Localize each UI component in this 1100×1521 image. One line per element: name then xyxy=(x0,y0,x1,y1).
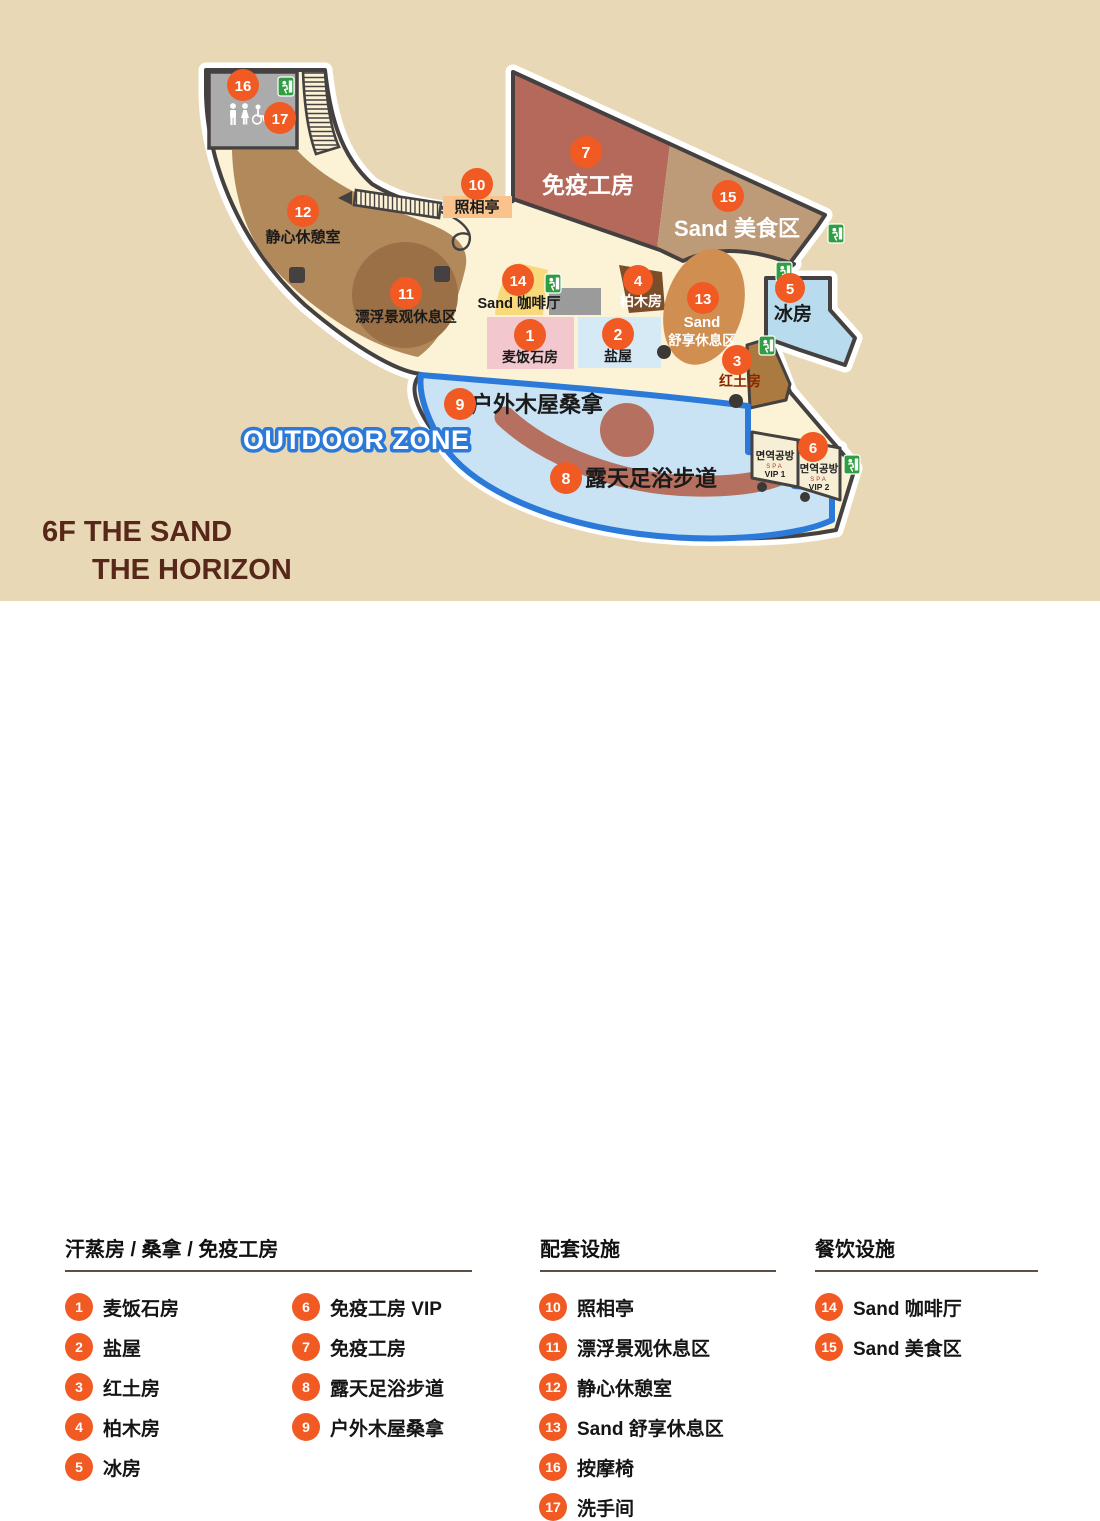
vip2-tag: VIP 2 xyxy=(809,482,830,492)
svg-text:2: 2 xyxy=(614,327,623,344)
page-title-line1: 6F THE SAND xyxy=(42,516,232,548)
map-marker-11: 11 xyxy=(390,277,422,309)
map-marker-12: 12 xyxy=(287,195,319,227)
legend-item-10: 10照相亭 xyxy=(539,1293,724,1321)
pillar-dot xyxy=(757,482,767,492)
legend-num-badge: 7 xyxy=(292,1333,320,1361)
svg-text:5: 5 xyxy=(786,281,794,298)
exit-icon xyxy=(828,224,844,243)
legend-num-badge: 4 xyxy=(65,1413,93,1441)
legend-col-dining: 14Sand 咖啡厅 15Sand 美食区 xyxy=(815,1293,962,1361)
vip2-name: 면역공방 xyxy=(800,462,839,475)
legend-item-6: 6免疫工房 VIP xyxy=(292,1293,444,1321)
page-title-line2: THE HORIZON xyxy=(92,554,292,586)
legend-divider xyxy=(540,1270,776,1272)
legend-item-8: 8露天足浴步道 xyxy=(292,1373,444,1401)
map-marker-4: 4 xyxy=(623,265,653,295)
legend-item-7: 7免疫工房 xyxy=(292,1333,444,1361)
svg-text:6: 6 xyxy=(809,440,817,457)
map-marker-15: 15 xyxy=(712,180,744,212)
legend-item-12: 12静心休憩室 xyxy=(539,1373,724,1401)
legend-num-badge: 8 xyxy=(292,1373,320,1401)
floor-map-section: 면역공방 SPA VIP 1 면역공방 SPA VIP 2 照相亭 免疫工房 S… xyxy=(0,0,1100,601)
legend-item-9: 9户外木屋桑拿 xyxy=(292,1413,444,1441)
massage-chair-square xyxy=(289,267,305,283)
legend-num-badge: 11 xyxy=(539,1333,567,1361)
label-sand-cafe: Sand 咖啡厅 xyxy=(478,294,561,312)
legend-section-title-amenities: 配套设施 xyxy=(540,1233,620,1262)
legend-item-11: 11漂浮景观休息区 xyxy=(539,1333,724,1361)
legend-item-1: 1麦饭石房 xyxy=(65,1293,179,1321)
pillar-dot xyxy=(729,394,743,408)
label-salt-room: 盐屋 xyxy=(604,348,632,364)
pillar-dot xyxy=(800,492,810,502)
legend-item-17: 17洗手间 xyxy=(539,1493,724,1521)
label-sand-food-zone: Sand 美食区 xyxy=(674,216,800,241)
legend-item-14: 14Sand 咖啡厅 xyxy=(815,1293,962,1321)
map-marker-8: 8 xyxy=(550,462,582,494)
legend-divider xyxy=(65,1270,472,1272)
legend-section-title-sauna: 汗蒸房 / 桑拿 / 免疫工房 xyxy=(65,1233,278,1262)
label-cypress-room: 柏木房 xyxy=(620,293,662,309)
legend-item-16: 16按摩椅 xyxy=(539,1453,724,1481)
label-outdoor-cabin-sauna: 户外木屋桑拿 xyxy=(471,392,604,417)
svg-text:1: 1 xyxy=(526,328,535,345)
floor-map: 면역공방 SPA VIP 1 면역공방 SPA VIP 2 照相亭 免疫工房 S… xyxy=(0,0,1100,601)
legend-col-sauna-b: 6免疫工房 VIP 7免疫工房 8露天足浴步道 9户外木屋桑拿 xyxy=(292,1293,444,1441)
legend-item-3: 3红土房 xyxy=(65,1373,179,1401)
legend-divider xyxy=(815,1270,1038,1272)
map-marker-13: 13 xyxy=(687,282,719,314)
outdoor-zone-label: OUTDOOR ZONE xyxy=(243,425,470,455)
outdoor-sauna-circle xyxy=(600,403,654,457)
map-marker-6: 6 xyxy=(798,432,828,462)
vip1-tag: VIP 1 xyxy=(765,469,786,479)
svg-text:16: 16 xyxy=(235,78,252,95)
legend-num-badge: 10 xyxy=(539,1293,567,1321)
svg-text:14: 14 xyxy=(510,273,527,290)
legend-num-badge: 12 xyxy=(539,1373,567,1401)
map-marker-7: 7 xyxy=(570,136,602,168)
map-marker-2: 2 xyxy=(602,318,634,350)
legend-item-15: 15Sand 美食区 xyxy=(815,1333,962,1361)
svg-text:12: 12 xyxy=(295,204,312,221)
map-marker-3: 3 xyxy=(722,345,752,375)
label-immunity-workshop: 免疫工房 xyxy=(542,172,634,198)
legend-num-badge: 1 xyxy=(65,1293,93,1321)
label-red-clay: 红土房 xyxy=(719,373,761,389)
legend-num-badge: 5 xyxy=(65,1453,93,1481)
label-sand-lounge-2: 舒享休息区 xyxy=(668,332,736,348)
map-marker-17: 17 xyxy=(264,102,296,134)
legend-col-amenities: 10照相亭 11漂浮景观休息区 12静心休憩室 13Sand 舒享休息区 16按… xyxy=(539,1293,724,1521)
legend-num-badge: 13 xyxy=(539,1413,567,1441)
label-medical-stone: 麦饭石房 xyxy=(502,349,558,365)
svg-text:7: 7 xyxy=(582,145,591,162)
legend-item-4: 4柏木房 xyxy=(65,1413,179,1441)
exit-icon xyxy=(545,274,561,293)
legend-num-badge: 2 xyxy=(65,1333,93,1361)
legend-num-badge: 14 xyxy=(815,1293,843,1321)
vip1-name: 면역공방 xyxy=(756,449,795,462)
label-ice-room: 冰房 xyxy=(774,302,812,325)
legend-num-badge: 17 xyxy=(539,1493,567,1521)
map-marker-16: 16 xyxy=(227,69,259,101)
svg-text:4: 4 xyxy=(634,273,643,290)
svg-text:11: 11 xyxy=(398,286,414,303)
map-marker-5: 5 xyxy=(775,273,805,303)
map-marker-9: 9 xyxy=(444,388,476,420)
exit-icon xyxy=(844,455,860,474)
photo-booth-label: 照相亭 xyxy=(454,198,499,216)
label-sand-lounge-1: Sand xyxy=(684,314,721,331)
label-floating-lounge: 漂浮景观休息区 xyxy=(355,308,457,326)
legend-num-badge: 6 xyxy=(292,1293,320,1321)
svg-text:9: 9 xyxy=(456,397,465,414)
map-marker-1: 1 xyxy=(514,319,546,351)
legend-num-badge: 16 xyxy=(539,1453,567,1481)
exit-icon xyxy=(759,336,775,355)
legend-num-badge: 15 xyxy=(815,1333,843,1361)
label-quiet-lounge: 静心休憩室 xyxy=(265,228,340,246)
legend-section: 汗蒸房 / 桑拿 / 免疫工房 配套设施 餐饮设施 1麦饭石房 2盐屋 3红土房… xyxy=(0,601,1100,976)
legend-section-title-dining: 餐饮设施 xyxy=(815,1233,895,1262)
svg-text:17: 17 xyxy=(272,111,289,128)
svg-text:10: 10 xyxy=(469,177,486,194)
legend-item-2: 2盐屋 xyxy=(65,1333,179,1361)
legend-col-sauna-a: 1麦饭石房 2盐屋 3红土房 4柏木房 5冰房 xyxy=(65,1293,179,1481)
massage-chair-square xyxy=(434,266,450,282)
label-footbath-walk: 露天足浴步道 xyxy=(585,466,717,491)
svg-text:13: 13 xyxy=(695,291,712,308)
exit-icon xyxy=(278,77,294,96)
legend-item-5: 5冰房 xyxy=(65,1453,179,1481)
svg-text:3: 3 xyxy=(733,353,741,370)
svg-text:8: 8 xyxy=(562,471,571,488)
map-marker-10: 10 xyxy=(461,168,493,200)
legend-num-badge: 3 xyxy=(65,1373,93,1401)
legend-num-badge: 9 xyxy=(292,1413,320,1441)
legend-item-13: 13Sand 舒享休息区 xyxy=(539,1413,724,1441)
map-marker-14: 14 xyxy=(502,264,534,296)
svg-text:15: 15 xyxy=(720,189,737,206)
